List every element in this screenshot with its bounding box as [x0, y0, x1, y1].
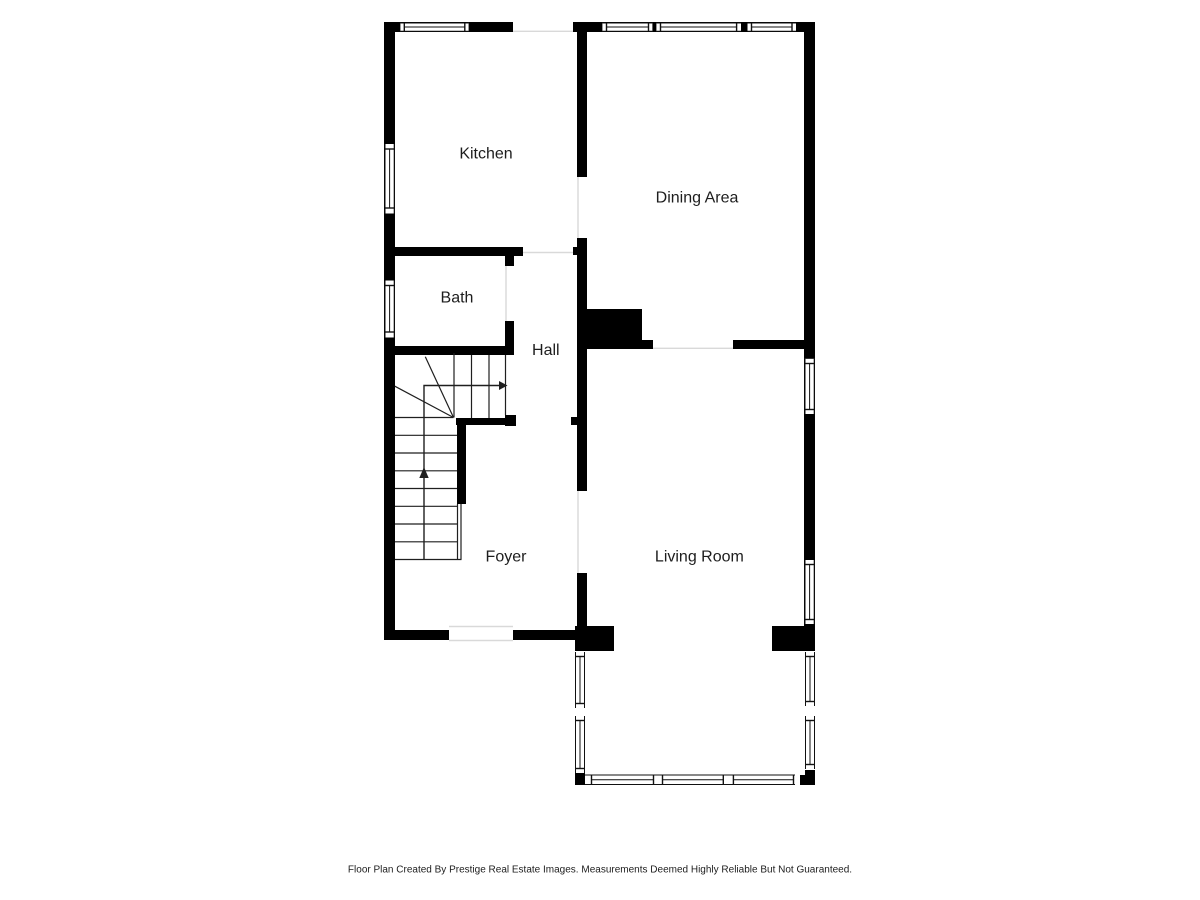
svg-text:Foyer: Foyer	[486, 549, 528, 566]
svg-text:Floor Plan Created By Prestige: Floor Plan Created By Prestige Real Esta…	[348, 865, 852, 876]
svg-text:Kitchen: Kitchen	[459, 146, 512, 163]
svg-text:Bath: Bath	[441, 290, 474, 307]
svg-text:Dining Area: Dining Area	[656, 190, 739, 207]
svg-text:Living Room: Living Room	[655, 548, 744, 565]
svg-text:Hall: Hall	[532, 342, 560, 359]
